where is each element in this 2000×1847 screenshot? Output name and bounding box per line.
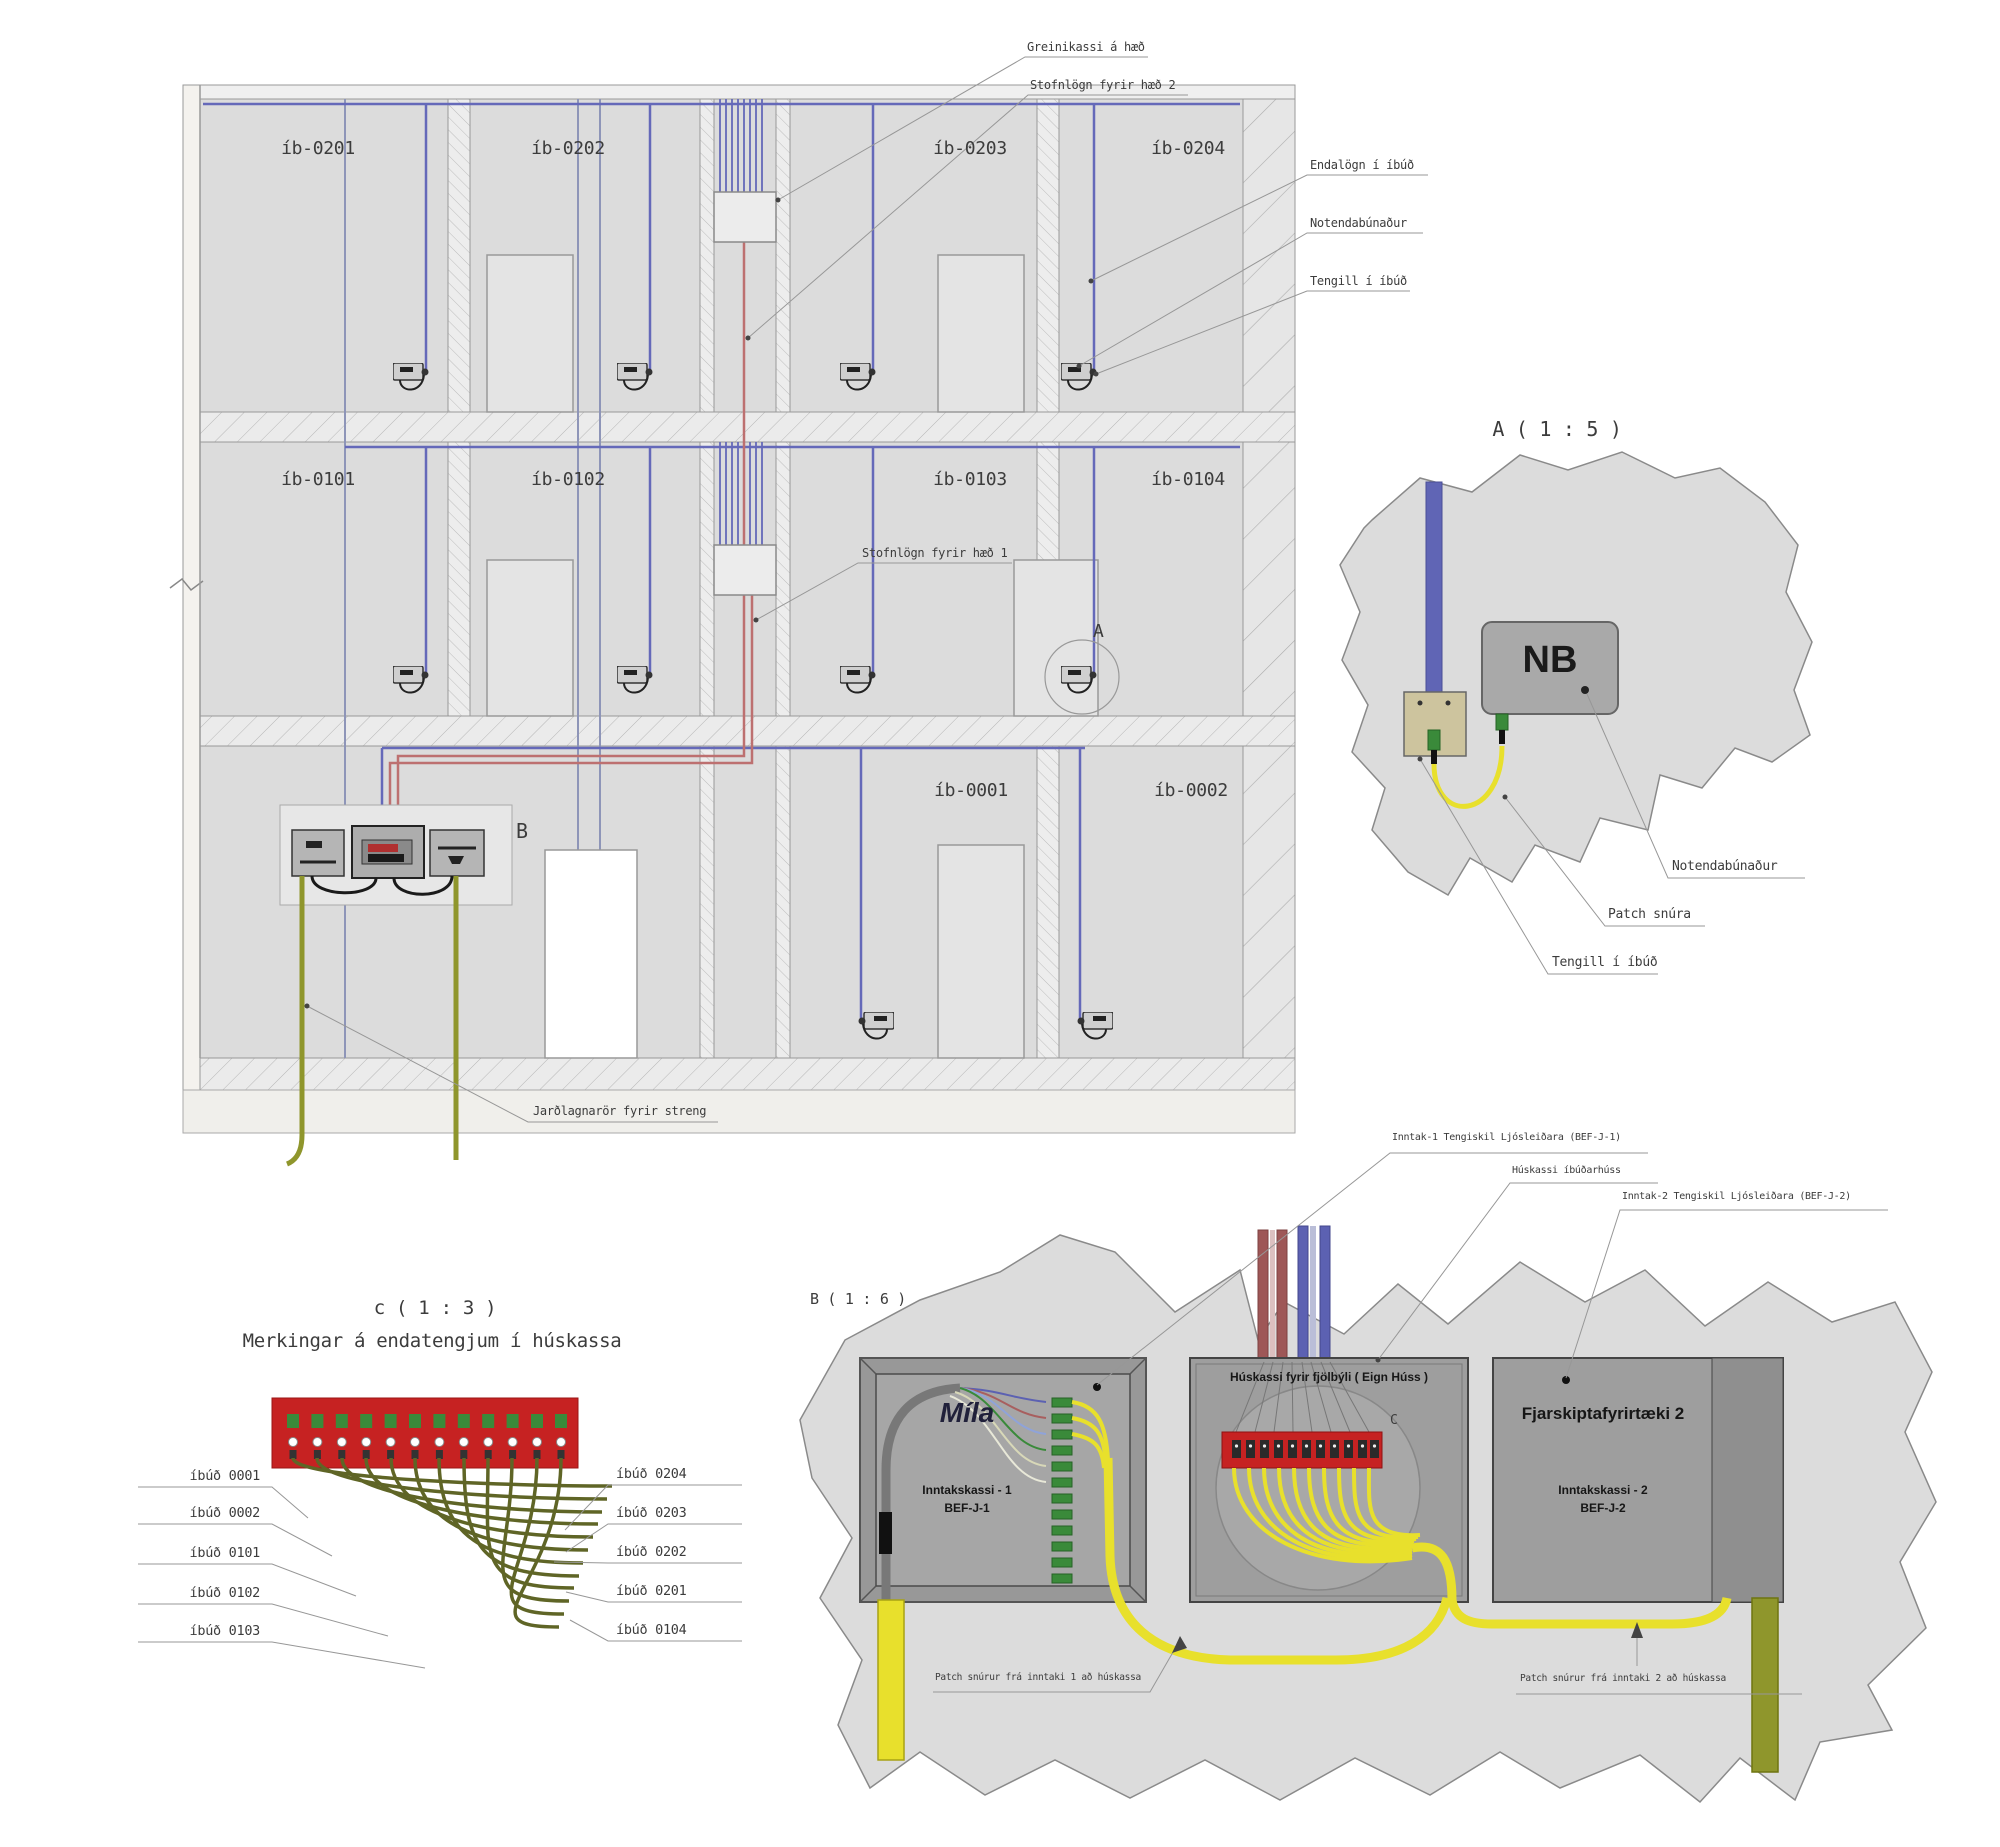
apartment-label: íb-0204 xyxy=(1128,139,1248,159)
apartment-label: íb-0001 xyxy=(911,781,1031,801)
apartment-label: íb-0002 xyxy=(1131,781,1251,801)
callout-stofnlogn-haed2: Stofnlögn fyrir hæð 2 xyxy=(1030,79,1175,92)
mila-box xyxy=(860,1358,1146,1602)
apartment-label: íb-0104 xyxy=(1128,470,1248,490)
callout-endalogn: Endalögn í íbúð xyxy=(1310,159,1414,172)
ibud-label: íbúð 0202 xyxy=(616,1545,686,1560)
terminal-cables xyxy=(293,1458,612,1627)
detail-c xyxy=(272,1398,612,1627)
mila-line1: Inntakskassi - 1 xyxy=(897,1484,1037,1497)
apartment-label: íb-0202 xyxy=(508,139,628,159)
detail-c-subtitle: Merkingar á endatengjum í húskassa xyxy=(232,1331,632,1352)
detail-b-title: B ( 1 : 6 ) xyxy=(778,1291,938,1308)
callout-inntak1: Inntak-1 Tengiskil Ljósleiðara (BEF-J-1) xyxy=(1392,1132,1621,1143)
nb-box-label: NB xyxy=(1482,640,1618,682)
detail-c-title: c ( 1 : 3 ) xyxy=(335,1298,535,1319)
ibud-label: íbúð 0203 xyxy=(616,1506,686,1521)
callout-a-tengill: Tengill í íbúð xyxy=(1552,956,1657,970)
detail-a-riser xyxy=(1426,482,1442,694)
callout-stofnlogn-haed1: Stofnlögn fyrir hæð 1 xyxy=(862,547,1007,560)
ibud-label: íbúð 0102 xyxy=(145,1586,260,1601)
ibud-label: íbúð 0001 xyxy=(145,1469,260,1484)
huskassi-box xyxy=(1190,1358,1468,1602)
apartment-label: íb-0102 xyxy=(508,470,628,490)
drawing-canvas xyxy=(0,0,2000,1847)
mila-line2: BEF-J-1 xyxy=(897,1502,1037,1515)
callout-greinikassi: Greinikassi á hæð xyxy=(1027,41,1145,54)
building-section xyxy=(170,85,1295,1164)
huskassi-title: Húskassi fyrir fjölbýli ( Eign Húss ) xyxy=(1200,1371,1458,1384)
callout-a-patch-snura: Patch snúra xyxy=(1608,908,1691,922)
apartment-label: íb-0201 xyxy=(258,139,378,159)
callout-jardlagnaror: Jarðlagnarör fyrir streng xyxy=(533,1105,706,1118)
fjarskipta-box xyxy=(1493,1358,1783,1602)
detail-c-marker: C xyxy=(1390,1414,1398,1428)
callout-tengill: Tengill í íbúð xyxy=(1310,275,1407,288)
apartment-label: íb-0103 xyxy=(910,470,1030,490)
technical-drawing-page: íb-0201 íb-0202 íb-0203 íb-0204 íb-0101 … xyxy=(0,0,2000,1847)
apartment-label: íb-0101 xyxy=(258,470,378,490)
ibud-label: íbúð 0201 xyxy=(616,1584,686,1599)
callout-notendabunadur: Notendabúnaður xyxy=(1310,217,1407,230)
ibud-label: íbúð 0204 xyxy=(616,1467,686,1482)
mila-brand: Míla xyxy=(897,1398,1037,1429)
feed-pipe-1 xyxy=(878,1600,904,1760)
callout-patch2: Patch snúrur frá inntaki 2 að húskassa xyxy=(1520,1674,1726,1684)
detail-a-marker: A xyxy=(1093,622,1104,642)
callout-a-notendabunadur: Notendabúnaður xyxy=(1672,860,1777,874)
fjarskipta-line2: BEF-J-2 xyxy=(1498,1502,1708,1515)
detail-a-title: A ( 1 : 5 ) xyxy=(1457,418,1657,440)
detail-b-marker: B xyxy=(516,820,528,842)
callout-patch1: Patch snúrur frá inntaki 1 að húskassa xyxy=(935,1673,1141,1683)
callout-huskassi: Húskassi íbúðarhúss xyxy=(1512,1165,1621,1176)
fjarskipta-line1: Inntakskassi - 2 xyxy=(1498,1484,1708,1497)
feed-pipe-2 xyxy=(1752,1598,1778,1772)
ibud-label: íbúð 0104 xyxy=(616,1623,686,1638)
callout-inntak2: Inntak-2 Tengiskil Ljósleiðara (BEF-J-2) xyxy=(1622,1191,1851,1202)
ibud-label: íbúð 0002 xyxy=(145,1506,260,1521)
apartment-label: íb-0203 xyxy=(910,139,1030,159)
fjarskipta-title: Fjarskiptafyrirtæki 2 xyxy=(1498,1405,1708,1424)
ibud-label: íbúð 0103 xyxy=(145,1624,260,1639)
b-room xyxy=(280,805,512,905)
ibud-label: íbúð 0101 xyxy=(145,1546,260,1561)
